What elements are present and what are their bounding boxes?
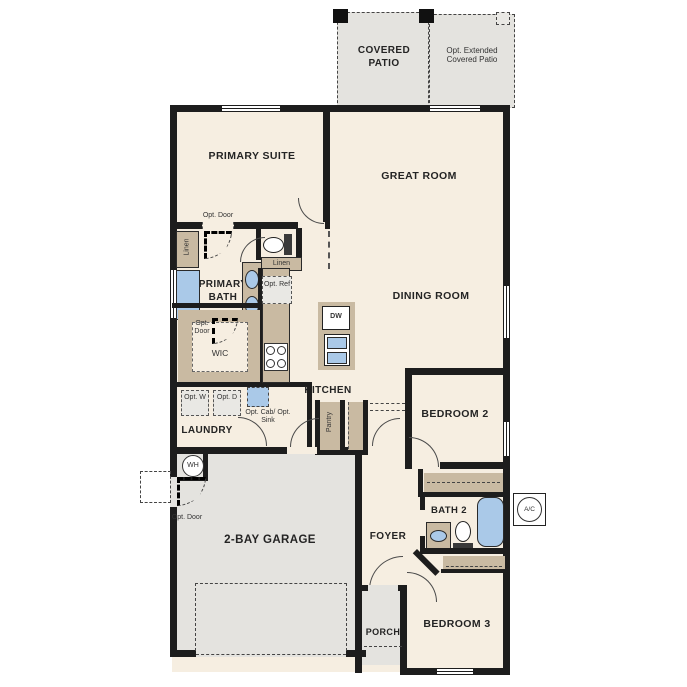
opt-washer-label: Opt. W (182, 394, 208, 402)
sliding-door (430, 105, 480, 112)
opt-ref-label: Opt. Ref (263, 281, 291, 289)
sink-basin-icon (327, 337, 347, 349)
wall (363, 400, 368, 454)
opt-door-label: Opt. Door (171, 514, 203, 522)
wall (441, 569, 510, 573)
toilet-icon (455, 521, 471, 542)
room-label-wic: WIC (204, 349, 236, 359)
wall (503, 105, 510, 675)
wall (172, 382, 312, 387)
wall (170, 105, 177, 657)
door-opening (287, 447, 317, 454)
patio-post (333, 9, 348, 23)
window (503, 286, 510, 338)
opt-door-opening (170, 477, 177, 507)
room-label-primary-suite: PRIMARY SUITE (208, 150, 296, 164)
sink-basin-icon (327, 352, 347, 364)
room-label-kitchen: KITCHEN (292, 384, 364, 397)
linen-label: Linen (261, 260, 302, 268)
hall-closet (348, 402, 363, 454)
window (503, 422, 510, 456)
wall (355, 452, 362, 588)
opt-sink-icon (247, 387, 269, 407)
room-label-dining-room: DINING ROOM (386, 290, 476, 304)
wall (172, 303, 264, 308)
window (437, 668, 473, 675)
wall (420, 492, 425, 510)
sink-icon (245, 270, 259, 289)
room-label-bedroom2: BEDROOM 2 (410, 408, 500, 422)
dishwasher-label: DW (322, 313, 350, 321)
bedroom3-closet (443, 556, 505, 569)
room-label-bedroom3: BEDROOM 3 (412, 618, 502, 632)
room-label-great-room: GREAT ROOM (374, 170, 464, 184)
bathtub-icon (477, 497, 504, 547)
room-label-laundry: LAUNDRY (179, 424, 235, 437)
toilet-tank-icon (284, 234, 292, 255)
optional-wall-dashes (328, 231, 330, 269)
sink-icon (430, 530, 447, 542)
opt-door-opening (202, 222, 234, 229)
room-label-garage: 2-BAY GARAGE (224, 533, 316, 548)
toilet-icon (263, 237, 284, 253)
burner-icon (266, 346, 275, 355)
water-heater-label: WH (182, 462, 204, 470)
burner-icon (277, 359, 286, 368)
opt-door-label: Opt. Door (196, 212, 240, 220)
closet-rod-dashes (446, 566, 502, 567)
room-label-opt-extended-patio: Opt. Extended Covered Patio (434, 46, 510, 64)
burner-icon (277, 346, 286, 355)
closet-rod-dashes (427, 482, 500, 483)
patio-post (419, 9, 434, 23)
linen-label: Linen (176, 243, 199, 251)
opt-dryer-label: Opt. D (214, 394, 240, 402)
wall (340, 400, 345, 454)
garage-door-dashes (196, 654, 346, 655)
front-door-opening (368, 585, 398, 591)
room-label-foyer: FOYER (362, 530, 414, 543)
patio-post-optional (496, 12, 510, 25)
garage-parking-outline (195, 583, 347, 651)
opt-door-stoop (140, 471, 171, 503)
wall (405, 368, 503, 375)
window (222, 105, 280, 112)
room-label-porch: PORCH (361, 627, 405, 639)
room-label-bath2: BATH 2 (424, 505, 474, 517)
burner-icon (266, 359, 275, 368)
wall (323, 105, 330, 229)
porch-edge-dashes (364, 646, 402, 647)
room-label-covered-patio: COVERED PATIO (346, 44, 422, 70)
wall (425, 548, 510, 554)
floor-plan: COVERED PATIO Opt. Extended Covered Pati… (0, 0, 687, 687)
optional-opening-dashes (370, 403, 405, 411)
pantry-label: Pantry (320, 418, 340, 426)
ac-label: A/C (517, 506, 542, 513)
